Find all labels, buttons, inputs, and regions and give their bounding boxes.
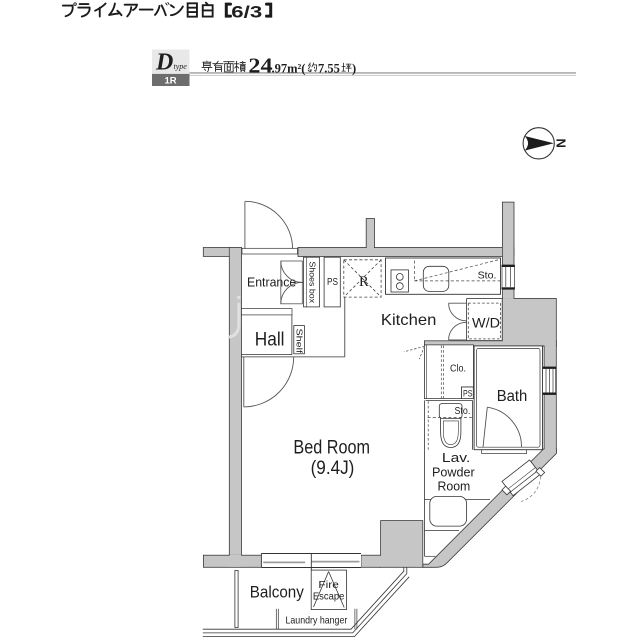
svg-text:(9.4J): (9.4J) <box>311 458 355 479</box>
svg-text:Shoes box: Shoes box <box>307 262 317 304</box>
svg-text:R: R <box>359 274 369 290</box>
svg-text:Fire: Fire <box>318 580 339 591</box>
svg-text:Bed Room: Bed Room <box>293 437 370 458</box>
svg-text:W/D: W/D <box>472 316 500 331</box>
svg-text:PS: PS <box>463 388 473 398</box>
svg-text:): ) <box>352 62 356 76</box>
svg-text:Bath: Bath <box>497 388 528 405</box>
svg-text:Hall: Hall <box>255 329 285 350</box>
svg-text:PS: PS <box>327 276 338 288</box>
svg-text:7.55: 7.55 <box>318 62 340 76</box>
svg-text:1R: 1R <box>165 76 177 87</box>
svg-text:Sto.: Sto. <box>478 270 497 282</box>
svg-text:Sto.: Sto. <box>455 406 471 417</box>
svg-text:N: N <box>554 139 569 148</box>
svg-text:Clo.: Clo. <box>450 362 466 374</box>
svg-text:Shelf: Shelf <box>295 329 305 354</box>
svg-text:.97m²(: .97m²( <box>272 62 306 76</box>
svg-text:24: 24 <box>248 54 272 78</box>
svg-text:Powder: Powder <box>432 464 475 479</box>
svg-text:Laundry hanger: Laundry hanger <box>286 614 348 626</box>
svg-text:Escape: Escape <box>313 592 345 603</box>
svg-text:Balcony: Balcony <box>250 584 305 602</box>
svg-text:type: type <box>174 62 188 71</box>
svg-text:Kitchen: Kitchen <box>381 312 437 329</box>
svg-text:Lav.: Lav. <box>442 450 470 465</box>
svg-text:6/3: 6/3 <box>231 3 262 22</box>
svg-text:Room: Room <box>438 479 471 494</box>
svg-text:D: D <box>155 50 173 76</box>
